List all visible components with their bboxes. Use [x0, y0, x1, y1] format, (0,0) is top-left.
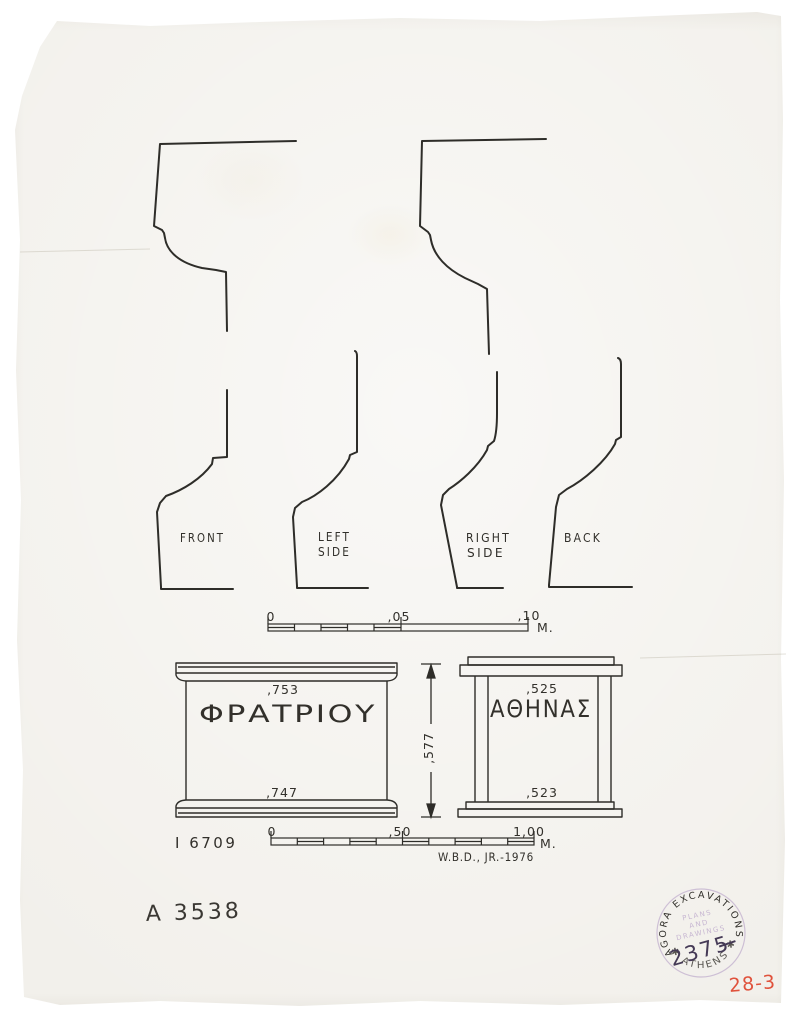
right-side-label-line2: SIDE: [467, 545, 505, 560]
right-crown-profile: [420, 139, 546, 354]
side-bottom-width: ,523: [526, 785, 558, 800]
left-side-label-line1: LEFT: [318, 529, 351, 544]
side-elevation-text: ,525 ΑΘΗΝΑΣ ,523: [490, 681, 592, 800]
front-inscription: ΦΡΑΤΡΙΟΥ: [199, 700, 377, 728]
front-base-taper-right: [387, 800, 397, 808]
scale-large-mid: ,50: [389, 824, 412, 839]
moulding-profiles: [154, 139, 632, 589]
front-label: FRONT: [180, 530, 225, 545]
front-cap-slab: [176, 663, 397, 673]
front-base-taper-left: [176, 800, 186, 808]
front-base-profile: [157, 390, 233, 589]
back-label: BACK: [564, 530, 602, 545]
front-body: [186, 681, 387, 800]
paper-creases: [20, 249, 786, 658]
scale-small-unit: M.: [537, 620, 554, 635]
arrow-up: [427, 665, 435, 678]
drawing-svg: FRONT LEFT SIDE RIGHT SIDE BACK 0 ,05 ,1…: [0, 0, 800, 1024]
scale-large-unit: M.: [540, 836, 557, 851]
side-base-plinth: [458, 809, 622, 817]
left-side-label-line2: SIDE: [318, 544, 351, 559]
profile-labels: FRONT LEFT SIDE RIGHT SIDE BACK: [180, 529, 602, 560]
right-side-label-line1: RIGHT: [466, 530, 511, 545]
inventory-number: I 6709: [175, 834, 237, 852]
front-cap-taper-left: [176, 673, 186, 681]
front-bottom-width: ,747: [266, 785, 298, 800]
side-top-width: ,525: [526, 681, 558, 696]
side-inscription: ΑΘΗΝΑΣ: [490, 695, 592, 723]
side-cap-fascia: [468, 657, 614, 665]
scale-small-mid: ,05: [388, 609, 411, 624]
arrow-down: [427, 804, 435, 817]
front-crown-profile: [154, 141, 296, 331]
scale-small-zero: 0: [267, 609, 276, 624]
back-base-profile: [549, 358, 632, 587]
drafter-signature: W.B.D., JR.-1976: [438, 850, 534, 864]
height-dimension-value: ,577: [421, 732, 436, 764]
side-cap-slab: [460, 665, 622, 676]
front-cap-taper-right: [387, 673, 397, 681]
front-top-width: ,753: [267, 682, 299, 697]
agora-stamp: AGORA EXCAVATIONS ✱ ATHENS ✱ PLANS AND D…: [649, 881, 753, 985]
scale-large-zero: 0: [268, 824, 277, 839]
catalog-number-handwritten: A 3538: [145, 899, 242, 927]
front-elevation-text: ,753 ΦΡΑΤΡΙΟΥ ,747: [199, 682, 377, 800]
side-base-band: [466, 802, 614, 809]
page-number-handwritten: 28-3: [728, 971, 777, 997]
